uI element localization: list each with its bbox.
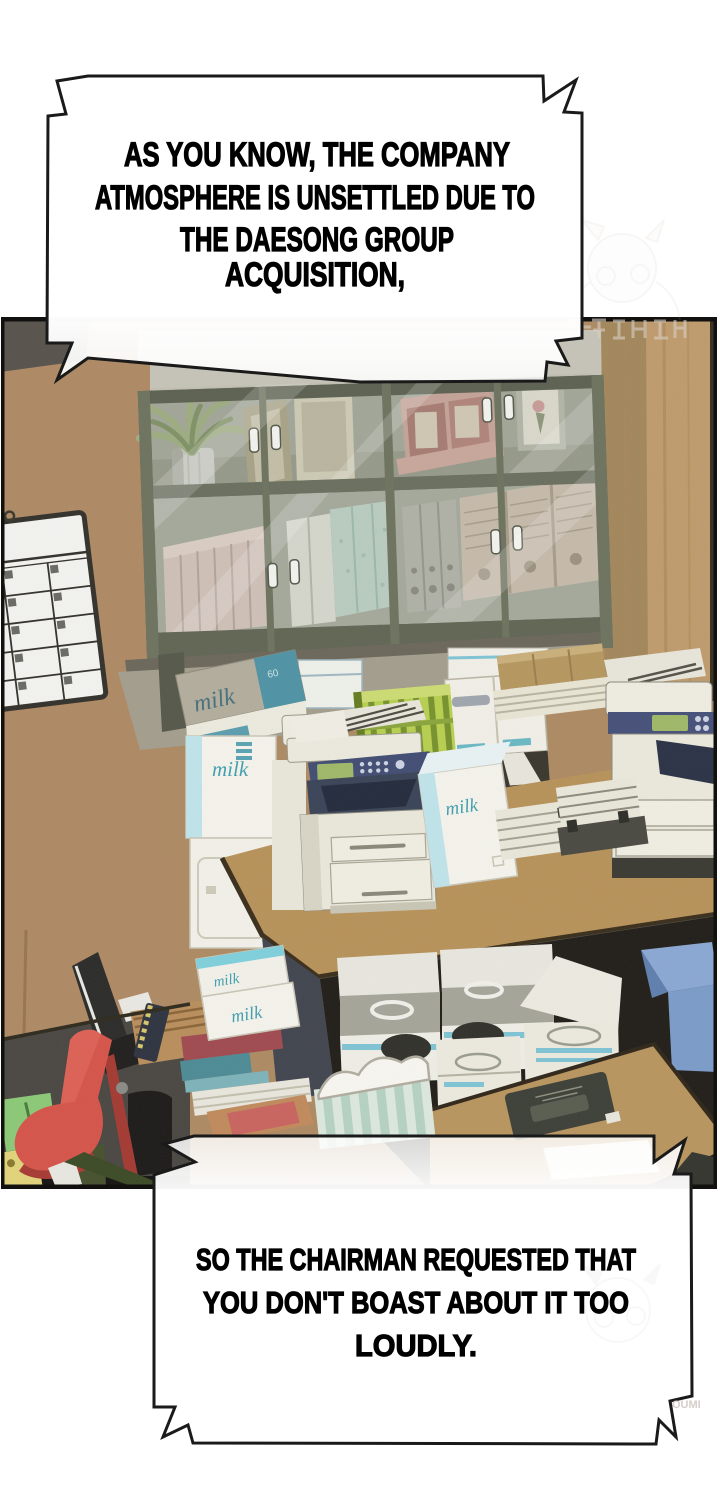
svg-text:ATMOSPHERE IS UNSETTLED DUE TO: ATMOSPHERE IS UNSETTLED DUE TO bbox=[95, 179, 535, 217]
svg-text:OUMI: OUMI bbox=[672, 1399, 701, 1411]
svg-text:SO THE CHAIRMAN REQUESTED THAT: SO THE CHAIRMAN REQUESTED THAT bbox=[196, 1242, 636, 1277]
svg-text:YOU DON'T BOAST ABOUT IT TOO: YOU DON'T BOAST ABOUT IT TOO bbox=[203, 1285, 629, 1320]
svg-text:THE DAESONG GROUP: THE DAESONG GROUP bbox=[180, 221, 454, 259]
svg-text:LOUDLY.: LOUDLY. bbox=[355, 1328, 477, 1363]
svg-text:ACQUISITION,: ACQUISITION, bbox=[225, 256, 405, 294]
svg-text:AS YOU KNOW, THE COMPANY: AS YOU KNOW, THE COMPANY bbox=[124, 136, 510, 174]
